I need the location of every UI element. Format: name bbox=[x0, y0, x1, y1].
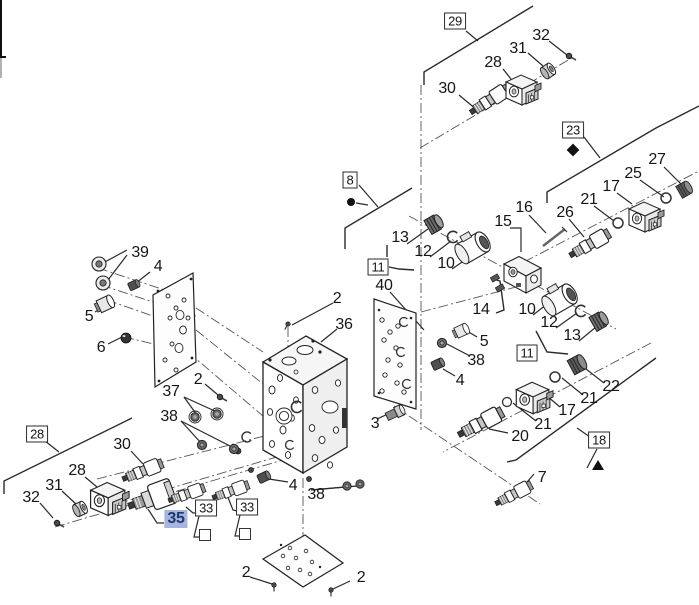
callout-17: 17 bbox=[558, 403, 575, 419]
callout-2: 2 bbox=[333, 291, 342, 307]
gasket-plate-40 bbox=[374, 299, 416, 409]
callout-27: 27 bbox=[648, 152, 665, 168]
end-plate-left bbox=[153, 273, 196, 387]
triangle-marker bbox=[592, 460, 604, 470]
callout-13: 13 bbox=[391, 230, 408, 246]
pilot-valve-block-15 bbox=[490, 257, 541, 294]
callout-14: 14 bbox=[472, 302, 489, 318]
callout-36: 36 bbox=[335, 317, 352, 333]
callout-3: 3 bbox=[371, 416, 380, 432]
callout-22: 22 bbox=[602, 379, 619, 395]
callout-23: 23 bbox=[562, 122, 584, 139]
callout-40: 40 bbox=[375, 278, 392, 294]
bottom-plate bbox=[263, 535, 343, 587]
callout-5: 5 bbox=[85, 309, 94, 325]
callout-39: 39 bbox=[131, 245, 148, 261]
callout-26: 26 bbox=[556, 205, 573, 221]
callout-2: 2 bbox=[242, 565, 251, 581]
callout-11: 11 bbox=[368, 259, 389, 276]
callout-37: 37 bbox=[162, 384, 179, 400]
callout-33: 33 bbox=[236, 499, 258, 516]
callout-2: 2 bbox=[194, 372, 203, 388]
callout-20: 20 bbox=[511, 429, 528, 445]
callout-32: 32 bbox=[22, 490, 39, 506]
page-corner-mark bbox=[0, 0, 6, 78]
callout-12: 12 bbox=[540, 315, 557, 331]
callout-18: 18 bbox=[588, 432, 610, 449]
callout-31: 31 bbox=[509, 41, 526, 57]
callout-28: 28 bbox=[26, 426, 48, 443]
callout-21: 21 bbox=[580, 391, 597, 407]
callout-30: 30 bbox=[438, 81, 455, 97]
callout-12: 12 bbox=[414, 244, 431, 260]
callout-33: 33 bbox=[195, 500, 217, 517]
callout-10: 10 bbox=[437, 256, 454, 272]
exploded-parts-diagram: 2932312830232725172126161581312101140236… bbox=[0, 0, 699, 605]
dot-marker bbox=[347, 198, 355, 206]
callout-2: 2 bbox=[357, 570, 366, 586]
square-marker bbox=[199, 529, 211, 541]
square-marker bbox=[239, 528, 251, 540]
callout-38: 38 bbox=[307, 487, 324, 503]
callout-32: 32 bbox=[532, 28, 549, 44]
callout-16: 16 bbox=[515, 200, 532, 216]
group-brackets bbox=[4, 6, 699, 494]
callout-31: 31 bbox=[45, 478, 62, 494]
callout-5: 5 bbox=[480, 334, 489, 350]
main-valve-block bbox=[235, 336, 347, 482]
callout-38: 38 bbox=[160, 409, 177, 425]
callout-8: 8 bbox=[343, 172, 358, 189]
callout-4: 4 bbox=[154, 259, 163, 275]
callout-11: 11 bbox=[517, 345, 538, 362]
callout-4: 4 bbox=[456, 373, 465, 389]
callout-17: 17 bbox=[602, 179, 619, 195]
callout-6: 6 bbox=[97, 340, 106, 356]
callout-21: 21 bbox=[534, 417, 551, 433]
callout-25: 25 bbox=[624, 166, 641, 182]
callout-29: 29 bbox=[444, 13, 466, 30]
callout-4: 4 bbox=[289, 478, 298, 494]
diagram-line-art bbox=[0, 0, 699, 605]
callout-30: 30 bbox=[113, 437, 130, 453]
callout-10: 10 bbox=[518, 302, 535, 318]
callout-7: 7 bbox=[538, 470, 547, 486]
callout-28: 28 bbox=[484, 55, 501, 71]
callout-28: 28 bbox=[68, 463, 85, 479]
solenoid-group-29 bbox=[467, 53, 576, 119]
callout-38: 38 bbox=[467, 353, 484, 369]
callout-15: 15 bbox=[494, 214, 511, 230]
callout-13: 13 bbox=[563, 328, 580, 344]
callout-35: 35 bbox=[164, 510, 187, 528]
callout-21: 21 bbox=[580, 192, 597, 208]
